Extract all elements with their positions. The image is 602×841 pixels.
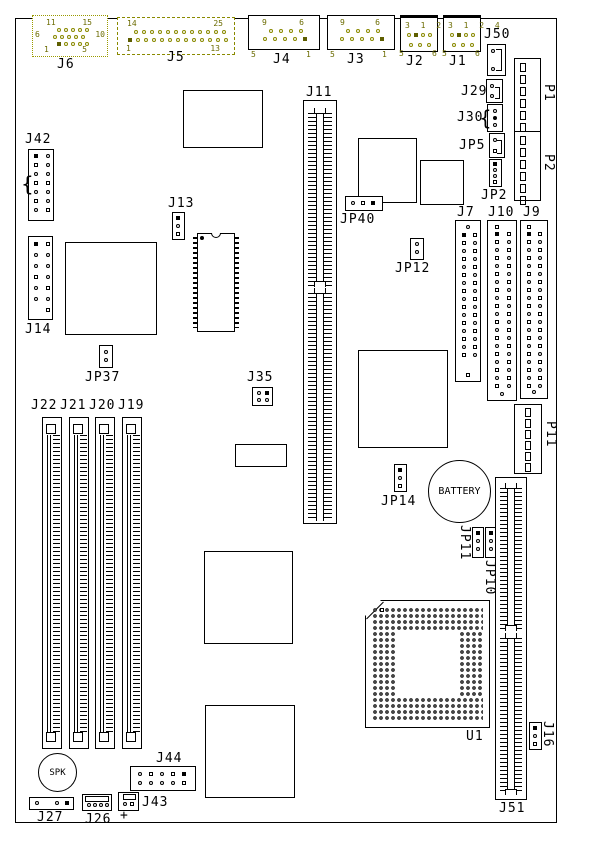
pin	[495, 384, 499, 388]
pin	[493, 174, 497, 178]
pin	[152, 38, 156, 42]
pin	[168, 38, 172, 42]
pin	[46, 163, 50, 167]
pin	[538, 368, 542, 372]
chip-right-upper	[358, 138, 417, 203]
pin	[71, 28, 75, 32]
pin	[361, 201, 365, 205]
pin	[398, 476, 402, 480]
pin	[507, 288, 511, 292]
pin	[495, 320, 499, 324]
pin	[520, 172, 526, 181]
pin	[104, 350, 108, 354]
jp14-pins	[398, 468, 402, 488]
j11-teeth-upper	[308, 113, 332, 286]
pin	[130, 802, 134, 806]
pin	[538, 256, 542, 260]
pin	[507, 232, 511, 236]
connector-j27	[29, 797, 74, 810]
pin	[538, 288, 542, 292]
pin	[525, 430, 531, 439]
pin	[283, 37, 287, 41]
pin	[74, 35, 78, 39]
label-jp14: JP14	[381, 495, 416, 508]
pin	[473, 337, 477, 341]
j1-pin-row	[450, 33, 475, 37]
j26-pins	[87, 803, 109, 807]
pin	[527, 256, 531, 260]
pin	[104, 358, 108, 362]
label-j13: J13	[168, 197, 194, 210]
pin	[473, 249, 477, 253]
pin	[527, 328, 531, 332]
label-j50: J50	[484, 28, 510, 41]
j6-pin-row	[57, 42, 89, 46]
connector-j6: 11 15 6 10 1 5	[32, 15, 108, 57]
pin	[473, 313, 477, 317]
pin	[222, 30, 226, 34]
j50-bracket	[496, 49, 502, 71]
chip-right-small	[420, 160, 464, 205]
pin	[520, 148, 526, 157]
pin	[538, 376, 542, 380]
pin	[376, 29, 380, 33]
chip-top-middle	[183, 90, 263, 148]
connector-j3: 9 6	[327, 15, 395, 50]
pin	[462, 265, 466, 269]
pin	[538, 248, 542, 252]
pin	[46, 275, 50, 279]
pin	[462, 337, 466, 341]
pin	[495, 376, 499, 380]
pin	[34, 172, 38, 176]
pin	[46, 242, 50, 246]
pin	[538, 232, 542, 236]
pin	[35, 801, 39, 805]
p2-pins	[520, 136, 526, 205]
pin	[473, 233, 477, 237]
pin	[60, 35, 64, 39]
pin	[160, 781, 164, 785]
pin	[493, 168, 497, 172]
pin	[182, 781, 186, 785]
j3-pin-row	[346, 29, 380, 33]
connector-jp5	[489, 133, 505, 158]
pin	[520, 196, 526, 205]
pin	[520, 136, 526, 145]
j4-pin-row	[269, 29, 303, 33]
label-p11: P11	[544, 421, 557, 447]
pin	[473, 273, 477, 277]
pin	[64, 28, 68, 32]
pin	[46, 308, 50, 312]
pin	[407, 33, 411, 37]
pin	[265, 391, 269, 395]
jp11-pins	[476, 531, 480, 551]
pin	[495, 248, 499, 252]
pin	[428, 33, 432, 37]
pin	[473, 289, 477, 293]
pin	[527, 232, 531, 236]
chip-left	[65, 242, 157, 335]
pin	[366, 29, 370, 33]
pin	[489, 531, 493, 535]
pin	[279, 29, 283, 33]
battery-label: BATTERY	[438, 486, 480, 497]
j6-pin-row	[57, 28, 89, 32]
pin	[57, 42, 61, 46]
chip-center-lower	[204, 551, 293, 644]
pin	[520, 184, 526, 193]
pin	[136, 38, 140, 42]
pin	[214, 30, 218, 34]
j13-pins	[176, 216, 180, 236]
label-j2: J2	[406, 55, 424, 68]
pin	[507, 280, 511, 284]
j35-pins	[257, 391, 269, 402]
pin	[409, 43, 413, 47]
pin	[495, 288, 499, 292]
label-j14: J14	[25, 323, 51, 336]
pin	[452, 43, 456, 47]
connector-j2: 3 1 2 4	[400, 15, 438, 52]
connector-jp40	[345, 196, 383, 211]
pin	[493, 162, 497, 166]
label-j22: J22	[31, 399, 57, 412]
pin	[303, 37, 307, 41]
pin	[507, 336, 511, 340]
pin	[495, 256, 499, 260]
j7-pins	[462, 233, 477, 357]
pin	[370, 37, 374, 41]
pin	[507, 312, 511, 316]
pin	[527, 272, 531, 276]
pin	[507, 248, 511, 252]
label-j29: J29	[461, 85, 487, 98]
label-jp2: JP2	[481, 189, 507, 202]
dip-chip	[197, 233, 235, 332]
pin	[473, 281, 477, 285]
pin	[346, 29, 350, 33]
j30-pins	[493, 109, 497, 127]
pin	[166, 30, 170, 34]
pin	[507, 240, 511, 244]
pin	[176, 224, 180, 228]
pin	[525, 441, 531, 450]
pin	[462, 305, 466, 309]
pin	[507, 360, 511, 364]
simm-slot-j19	[122, 417, 142, 749]
pin	[350, 37, 354, 41]
pin	[527, 304, 531, 308]
label-j4: J4	[273, 53, 291, 66]
pin	[520, 75, 526, 84]
pin	[289, 29, 293, 33]
j9-pins	[527, 232, 542, 388]
j43-pins	[123, 802, 134, 806]
pin	[538, 272, 542, 276]
pin	[538, 320, 542, 324]
pin	[507, 376, 511, 380]
pin	[34, 242, 38, 246]
label-j19: J19	[118, 399, 144, 412]
pin	[462, 353, 466, 357]
pin	[46, 190, 50, 194]
j44-pins	[138, 772, 186, 785]
pin	[176, 232, 180, 236]
pin	[34, 264, 38, 268]
pin	[538, 312, 542, 316]
pin	[149, 772, 153, 776]
pin	[206, 30, 210, 34]
pin	[171, 772, 175, 776]
jp2-pins	[493, 162, 497, 184]
pin	[495, 328, 499, 332]
j14-pins	[34, 242, 50, 312]
pin	[457, 33, 461, 37]
pin	[533, 734, 537, 738]
connector-j44	[130, 766, 196, 791]
pin	[527, 320, 531, 324]
label-j10: J10	[488, 206, 514, 219]
label-j5: J5	[167, 51, 185, 64]
connector-p11	[514, 404, 542, 474]
pin	[538, 360, 542, 364]
pin	[46, 154, 50, 158]
pin	[495, 344, 499, 348]
pin	[134, 30, 138, 34]
pin	[128, 38, 132, 42]
pin	[538, 304, 542, 308]
pin	[527, 288, 531, 292]
label-j7: J7	[457, 206, 475, 219]
pin	[142, 30, 146, 34]
pin	[71, 42, 75, 46]
label-j35: J35	[247, 371, 273, 384]
pin	[299, 29, 303, 33]
pin	[495, 240, 499, 244]
pin	[520, 111, 526, 120]
connector-j42: {	[28, 149, 54, 221]
pin	[273, 37, 277, 41]
pin	[67, 35, 71, 39]
pin	[507, 352, 511, 356]
pin	[476, 531, 480, 535]
pin	[495, 272, 499, 276]
pin	[495, 336, 499, 340]
pin	[356, 29, 360, 33]
pin	[87, 803, 91, 807]
pin	[149, 781, 153, 785]
pin	[46, 253, 50, 257]
pin	[520, 123, 526, 132]
simm-slot-j21	[69, 417, 89, 749]
pin	[171, 781, 175, 785]
pin	[473, 353, 477, 357]
pin	[538, 344, 542, 348]
label-j16: J16	[541, 721, 554, 747]
pin	[351, 201, 355, 205]
connector-j13	[172, 212, 185, 240]
j42-pins	[34, 154, 50, 212]
pin	[507, 272, 511, 276]
label-j11: J11	[306, 86, 332, 99]
dip-pins-right	[235, 237, 239, 328]
connector-j30: {	[487, 104, 503, 132]
connector-j29	[486, 79, 503, 103]
pin	[85, 28, 89, 32]
pin	[46, 297, 50, 301]
pin	[34, 208, 38, 212]
pin	[538, 264, 542, 268]
pin	[138, 772, 142, 776]
pin	[138, 781, 142, 785]
j27-pins	[35, 801, 69, 805]
pin	[34, 154, 38, 158]
pin	[462, 329, 466, 333]
label-j21: J21	[60, 399, 86, 412]
j10-pins	[495, 232, 511, 388]
pin	[538, 280, 542, 284]
pin	[398, 468, 402, 472]
connector-j10	[487, 220, 517, 401]
pin	[527, 312, 531, 316]
pin	[507, 328, 511, 332]
jp37-pins	[104, 350, 108, 362]
label-j3: J3	[347, 53, 365, 66]
dip-notch	[211, 233, 221, 238]
pin	[462, 273, 466, 277]
label-jp37: JP37	[85, 371, 120, 384]
pin	[507, 384, 511, 388]
slot-j11	[303, 100, 337, 524]
pin	[533, 742, 537, 746]
pin	[525, 408, 531, 417]
pin	[34, 308, 38, 312]
pin	[462, 233, 466, 237]
pin	[415, 250, 419, 254]
label-j26: J26	[85, 813, 111, 826]
pin	[415, 242, 419, 246]
connector-j1: 3 1 2 4	[443, 15, 481, 52]
connector-jp37	[99, 345, 113, 368]
pin	[470, 43, 474, 47]
pin	[174, 30, 178, 34]
label-j42: J42	[25, 133, 51, 146]
pin	[200, 38, 204, 42]
label-j6: J6	[57, 58, 75, 71]
speaker-label: SPK	[49, 768, 65, 778]
j3-pin-row	[340, 37, 384, 41]
label-jp40: JP40	[340, 213, 375, 226]
pin	[46, 286, 50, 290]
label-j1: J1	[449, 55, 467, 68]
pin	[462, 297, 466, 301]
pin	[493, 180, 497, 184]
pin	[538, 296, 542, 300]
pin	[527, 368, 531, 372]
simm-slot-j20	[95, 417, 115, 749]
pin	[57, 28, 61, 32]
pin	[538, 352, 542, 356]
pin	[34, 199, 38, 203]
pin	[34, 297, 38, 301]
connector-j7	[455, 220, 481, 382]
chip-right-middle	[358, 350, 448, 448]
pin	[473, 305, 477, 309]
pin	[461, 43, 465, 47]
connector-jp2	[489, 159, 502, 187]
label-j20: J20	[89, 399, 115, 412]
pin	[495, 264, 499, 268]
pin	[473, 257, 477, 261]
label-j9: J9	[523, 206, 541, 219]
label-j43: J43	[142, 796, 168, 809]
pin	[184, 38, 188, 42]
pin	[495, 232, 499, 236]
label-j27: J27	[37, 811, 63, 824]
pin	[398, 484, 402, 488]
p11-pins	[525, 408, 531, 472]
pin	[34, 181, 38, 185]
jp5-bracket	[497, 140, 502, 154]
pin	[527, 264, 531, 268]
label-j44: J44	[156, 752, 182, 765]
pin	[81, 35, 85, 39]
pin	[493, 123, 497, 127]
pin	[462, 257, 466, 261]
pin	[525, 452, 531, 461]
label-j51: J51	[499, 802, 525, 815]
pin	[476, 547, 480, 551]
pin	[182, 30, 186, 34]
pin	[462, 249, 466, 253]
pin	[34, 190, 38, 194]
pin	[462, 321, 466, 325]
connector-jp11	[472, 527, 484, 558]
pin	[538, 384, 542, 388]
pin	[158, 30, 162, 34]
pin	[93, 803, 97, 807]
slot-j51	[495, 477, 527, 800]
pin	[462, 241, 466, 245]
connector-j26	[82, 794, 112, 811]
pin	[520, 160, 526, 169]
jp12-pins	[415, 242, 419, 254]
p1-pins	[520, 63, 526, 132]
pin	[471, 33, 475, 37]
motherboard-diagram: 11 15 6 10 1 5 J6 14 25 1 13 J5 9 6 5 1 …	[0, 0, 602, 841]
pin	[55, 801, 59, 805]
p1-p2-divider	[515, 131, 540, 132]
pin	[208, 38, 212, 42]
pin	[507, 368, 511, 372]
pin	[150, 30, 154, 34]
pin	[46, 199, 50, 203]
pin	[489, 547, 493, 551]
pin	[527, 296, 531, 300]
pin	[527, 384, 531, 388]
pin	[360, 37, 364, 41]
pin	[263, 37, 267, 41]
j6-pin-row	[53, 35, 85, 39]
label-jp12: JP12	[395, 262, 430, 275]
pin	[473, 321, 477, 325]
connector-j9	[520, 220, 548, 399]
battery: BATTERY	[428, 460, 491, 523]
pin	[495, 296, 499, 300]
j4-pin-row	[263, 37, 307, 41]
